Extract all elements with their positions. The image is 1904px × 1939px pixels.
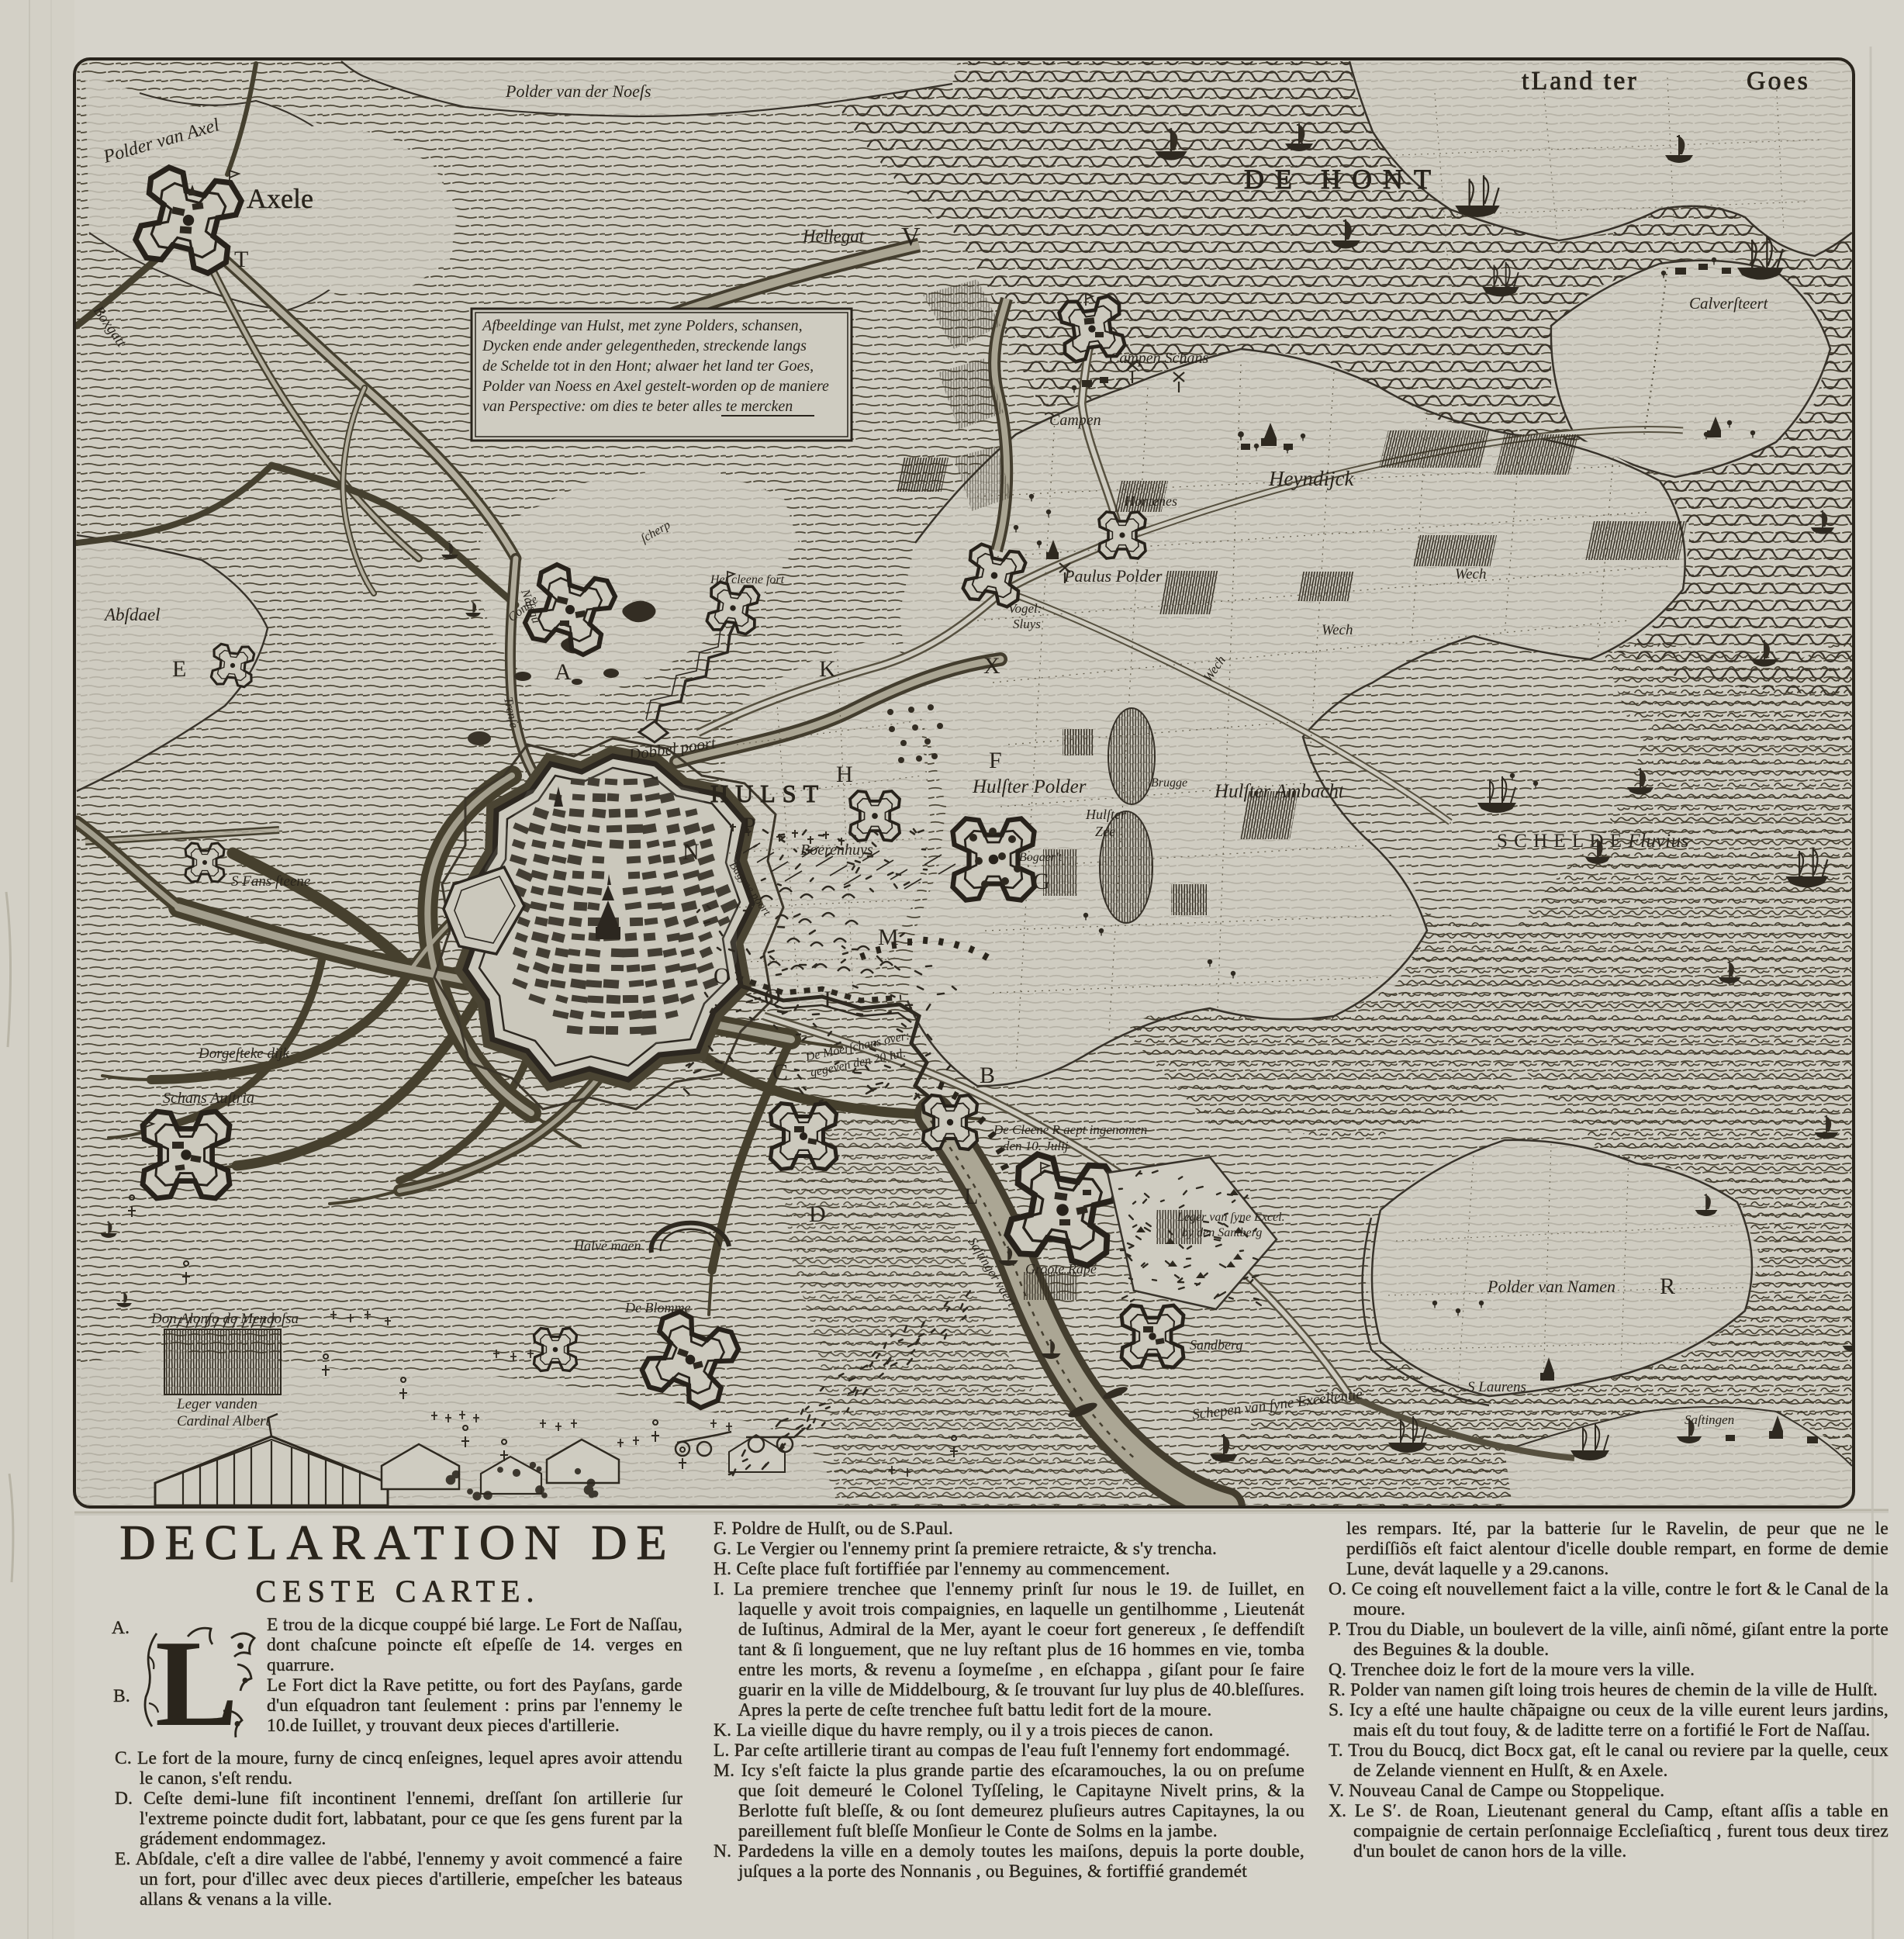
svg-text:S C H E L D E Fluvius: S C H E L D E Fluvius	[1497, 831, 1689, 852]
svg-text:Abſdael: Abſdael	[103, 605, 161, 624]
svg-text:Boerenhuys: Boerenhuys	[800, 842, 873, 859]
svg-text:X: X	[983, 653, 1000, 679]
svg-text:Paulus Polder: Paulus Polder	[1063, 566, 1163, 586]
svg-text:Heyndijck: Heyndijck	[1268, 467, 1354, 490]
svg-text:De Blomme: De Blomme	[624, 1300, 690, 1315]
svg-text:Campen Schans: Campen Schans	[1109, 350, 1209, 367]
svg-text:Polder van Noess en Axel geste: Polder van Noess en Axel gestelt-worden …	[482, 378, 829, 395]
svg-text:Cardinal Albert: Cardinal Albert	[177, 1413, 271, 1429]
svg-text:by den Santberg: by den Santberg	[1182, 1226, 1262, 1239]
svg-text:Hulſter Polder: Hulſter Polder	[972, 776, 1087, 797]
svg-text:tLand ter: tLand ter	[1522, 67, 1639, 95]
svg-text:L: L	[964, 1184, 978, 1209]
svg-text:De Cleene R aept ingenomen: De Cleene R aept ingenomen	[993, 1122, 1147, 1137]
svg-text:Wech: Wech	[1322, 622, 1353, 638]
svg-text:Dorgeſteke dijk: Dorgeſteke dijk	[198, 1046, 290, 1062]
svg-text:Hulſter Ambacht: Hulſter Ambacht	[1214, 781, 1345, 802]
svg-text:Leger vanden: Leger vanden	[176, 1396, 257, 1412]
svg-text:F: F	[989, 748, 1002, 773]
svg-text:van Perspective: om dies te be: van Perspective: om dies te beter alles …	[482, 398, 793, 415]
svg-text:Calverſteert: Calverſteert	[1689, 294, 1769, 313]
svg-text:Het cleene fort: Het cleene fort	[710, 573, 785, 586]
svg-text:Vogel:: Vogel:	[1008, 601, 1042, 616]
svg-text:den 10. Julij: den 10. Julij	[1003, 1139, 1069, 1153]
svg-text:Schans Auſtria: Schans Auſtria	[163, 1090, 254, 1107]
svg-text:Goes: Goes	[1747, 67, 1810, 95]
svg-text:S Fans ſteene: S Fans ſteene	[231, 873, 310, 890]
svg-text:H: H	[836, 762, 853, 787]
svg-text:Don Alonſo de Mendoſsa: Don Alonſo de Mendoſsa	[150, 1311, 299, 1327]
svg-text:Wech: Wech	[1455, 566, 1486, 582]
svg-text:Sluys: Sluys	[1013, 617, 1041, 631]
svg-text:Halve maen: Halve maen	[573, 1238, 641, 1253]
svg-text:Polder van Namen: Polder van Namen	[1487, 1277, 1615, 1296]
svg-text:T: T	[234, 247, 248, 272]
svg-text:Q: Q	[764, 984, 781, 1010]
svg-text:L: L	[155, 1618, 238, 1751]
svg-text:D: D	[809, 1201, 826, 1227]
svg-text:R: R	[1660, 1274, 1675, 1299]
svg-text:N: N	[682, 839, 700, 865]
svg-text:DE HONT: DE HONT	[1244, 164, 1442, 195]
svg-text:Groote Rapé: Groote Rapé	[1025, 1261, 1097, 1277]
svg-text:Brugge: Brugge	[1151, 776, 1187, 790]
svg-text:I: I	[824, 987, 831, 1012]
svg-text:Hellegat: Hellegat	[802, 226, 865, 246]
svg-text:Leger van ſyne Excel.: Leger van ſyne Excel.	[1177, 1211, 1285, 1224]
svg-text:Hontenes: Hontenes	[1124, 493, 1177, 509]
svg-text:K: K	[819, 656, 836, 682]
svg-text:P: P	[743, 813, 756, 838]
svg-text:C: C	[772, 1059, 788, 1085]
svg-text:E: E	[172, 656, 186, 682]
svg-text:S Laurens: S Laurens	[1467, 1379, 1526, 1395]
svg-text:Dycken ende ander gelegenthede: Dycken ende ander gelegentheden, strecke…	[482, 337, 807, 354]
svg-text:B: B	[980, 1063, 995, 1088]
svg-text:V: V	[901, 223, 921, 251]
svg-text:O: O	[714, 963, 731, 989]
svg-text:A: A	[555, 659, 572, 685]
svg-text:Axele: Axele	[247, 183, 313, 214]
svg-text:Zee: Zee	[1095, 824, 1115, 839]
svg-text:Afbeeldinge van Hulst, met zyn: Afbeeldinge van Hulst, met zyne Polders,…	[481, 317, 803, 334]
svg-text:M: M	[878, 925, 899, 950]
svg-text:Polder van der Noeſs: Polder van der Noeſs	[505, 81, 651, 101]
svg-text:Bogaer't: Bogaer't	[1019, 851, 1063, 864]
svg-text:HULST: HULST	[710, 779, 825, 807]
svg-text:Campen: Campen	[1049, 412, 1101, 429]
svg-text:de Schelde tot in den Hont; al: de Schelde tot in den Hont; alwaer het l…	[482, 358, 814, 375]
svg-text:Hulſter: Hulſter	[1085, 807, 1127, 822]
svg-text:Saſtingen: Saſtingen	[1685, 1412, 1734, 1427]
svg-text:G: G	[1033, 869, 1050, 894]
svg-text:Sandberg: Sandberg	[1190, 1337, 1242, 1353]
